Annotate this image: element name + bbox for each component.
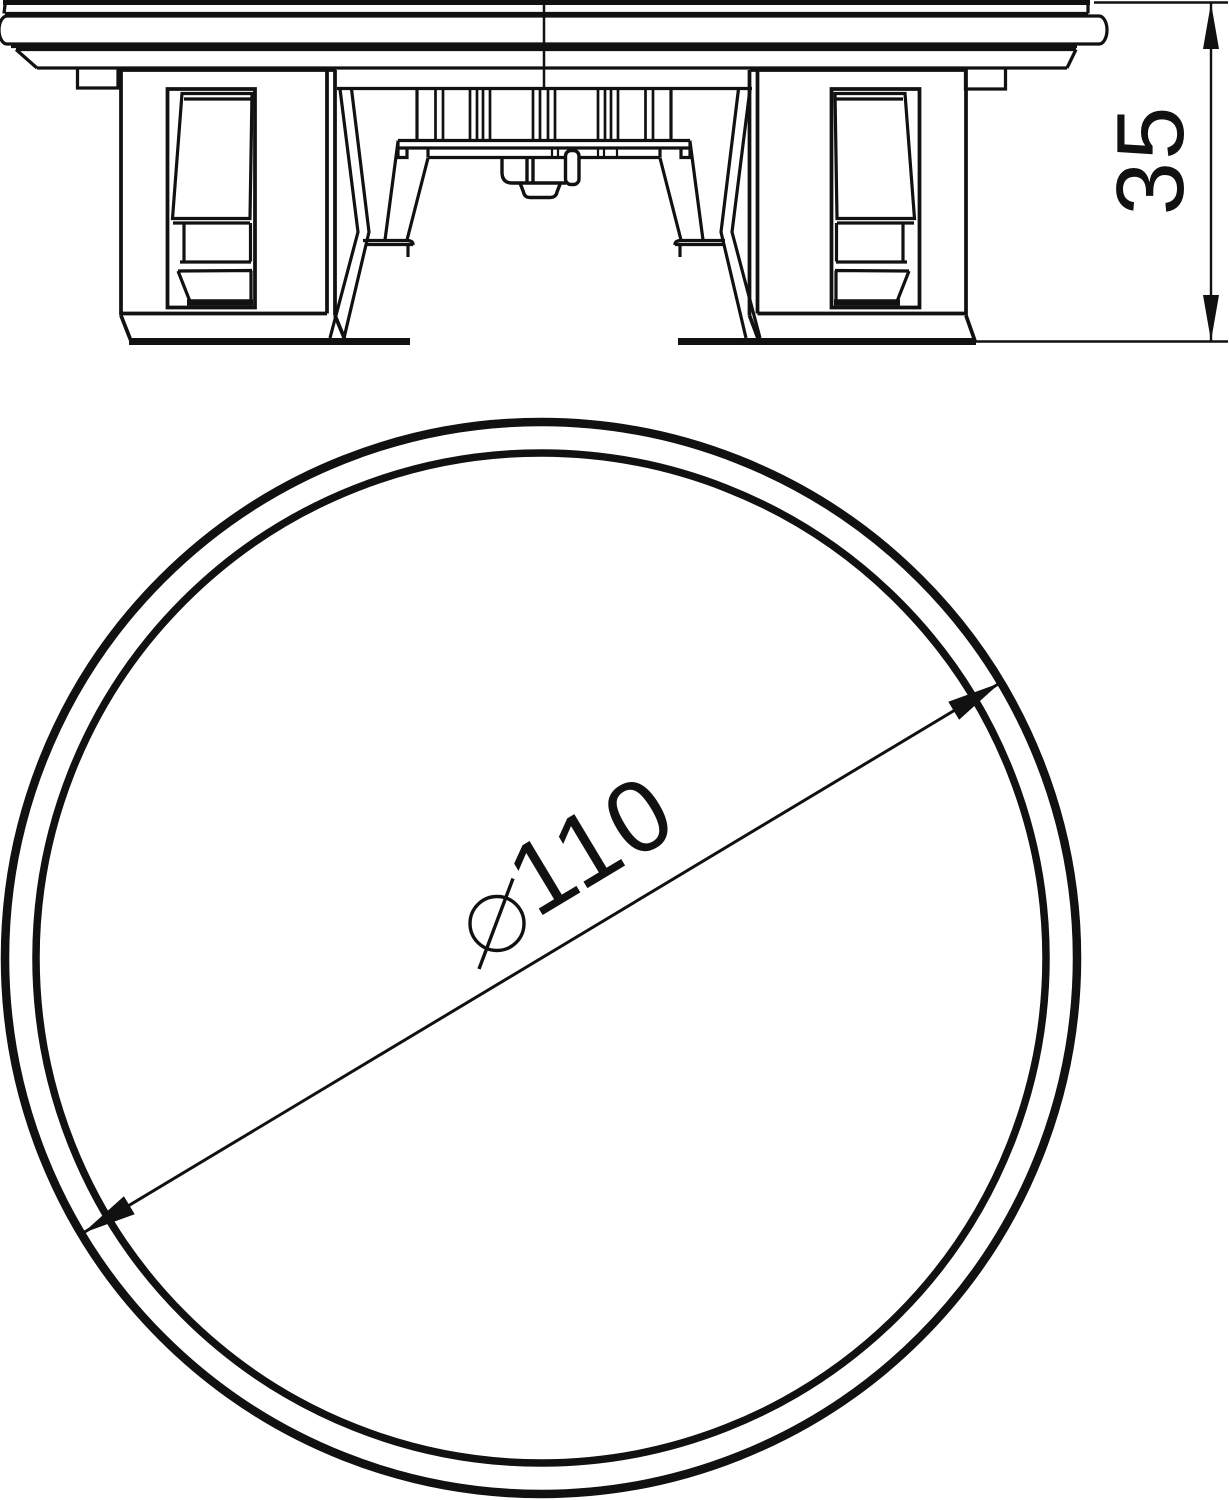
right-ear-tab [966, 68, 1006, 89]
screw-latch-pill [566, 151, 580, 185]
height-dim-arrow-down [1203, 295, 1219, 341]
height-dimension: 35 [976, 3, 1228, 342]
technical-drawing-page: 35 110 [0, 0, 1229, 1500]
left-foot-clamp [173, 94, 253, 302]
bracket-ribs [436, 89, 654, 141]
left-ear-tab [78, 68, 119, 88]
right-foot-clamp [835, 94, 915, 302]
center-bracket [330, 89, 760, 339]
height-dim-arrow-up [1203, 3, 1219, 49]
technical-drawing: 35 110 [0, 0, 1229, 1500]
cover-profile [0, 1, 1107, 88]
bracket-plate-ticks [552, 149, 617, 158]
diameter-dimension: 110 [83, 683, 1000, 1233]
diameter-line [83, 683, 1000, 1233]
height-dim-text: 35 [1097, 105, 1204, 216]
side-view: 35 [0, 1, 1228, 342]
cover-bands-outline [0, 1, 1107, 68]
diameter-symbol-slash [479, 879, 513, 970]
diameter-arrow-lower [83, 1196, 135, 1233]
plan-view: 110 [5, 422, 1077, 1494]
bracket-frame [330, 89, 760, 339]
diameter-arrow-upper [948, 683, 1000, 720]
